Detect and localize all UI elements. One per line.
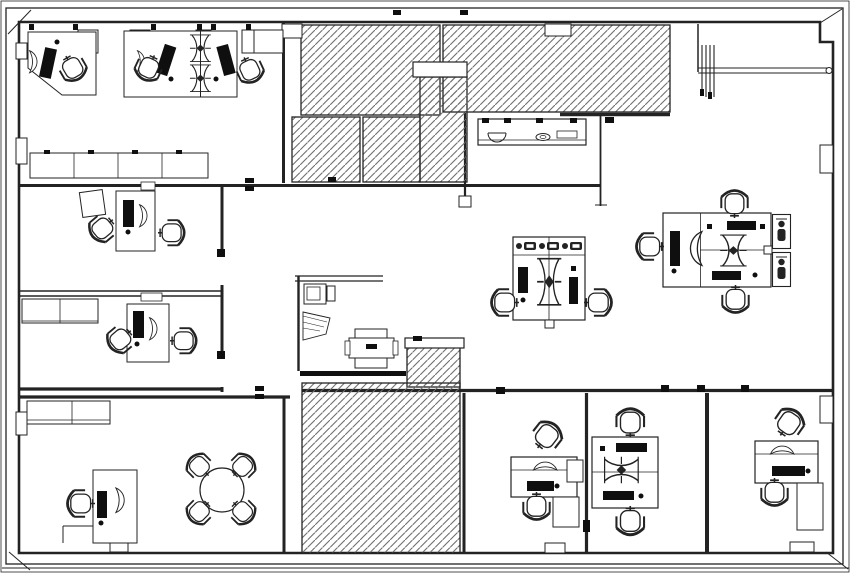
monitor (670, 231, 680, 266)
door-jamb (245, 186, 254, 191)
cabinet-tick (88, 150, 94, 154)
desk-tab (764, 246, 772, 254)
core3-top-band (300, 371, 406, 376)
desk-dot (126, 230, 131, 235)
desk-square (760, 224, 765, 229)
task-chair (637, 233, 665, 259)
corner-bevel-tr (820, 9, 842, 23)
desk-square (600, 446, 605, 451)
overhead-cabinet (242, 30, 254, 53)
door-panel-core1 (413, 62, 467, 77)
window-right-2 (820, 396, 833, 423)
door-jamb (197, 24, 202, 30)
window-right-1 (820, 145, 833, 173)
desk-equipment (539, 242, 559, 250)
hatched-core-1b (363, 117, 420, 182)
return-cabinet (797, 483, 823, 530)
monitor (133, 311, 144, 338)
threshold-officeC (790, 542, 814, 552)
visitor-chair (769, 404, 808, 443)
cabinet-bl (27, 401, 110, 424)
printer-side-tab (345, 341, 350, 355)
door-office2 (141, 293, 162, 301)
cabinet-tick (132, 150, 138, 154)
door-panel-core2 (545, 24, 571, 36)
door-jamb (217, 249, 225, 257)
monitor (603, 491, 634, 500)
door-jamb (245, 178, 254, 183)
visitor-chair (158, 220, 184, 245)
task-chair (233, 52, 267, 86)
printer-slot (366, 344, 377, 349)
desk-dot (135, 342, 140, 347)
monitor (123, 200, 134, 227)
threshold-officeA (545, 543, 565, 553)
door-jamb (255, 386, 264, 391)
desk-dot (521, 298, 526, 303)
task-chair (616, 506, 644, 535)
door-jamb (393, 10, 401, 15)
window-left-1 (16, 43, 27, 59)
door-jamb (697, 385, 705, 392)
cabinet-row-room1 (30, 153, 208, 178)
door-jamb (741, 385, 749, 392)
desk-dot (99, 521, 104, 526)
desk-office1 (116, 191, 155, 251)
door-jamb (460, 10, 468, 15)
cabinet-tick (176, 150, 182, 154)
door-jamb (255, 394, 264, 399)
floor-plan-canvas (0, 0, 851, 574)
desk-square (571, 266, 576, 271)
door-jamb (328, 177, 336, 182)
desk-cluster-a (28, 32, 96, 95)
door-jamb (211, 24, 216, 30)
desk-dot (753, 273, 758, 278)
corner-bevel-br (826, 552, 848, 569)
monitor (616, 443, 647, 452)
window-left-2 (16, 138, 27, 164)
side-cabinet (79, 190, 105, 218)
door-jamb (151, 24, 156, 30)
pedestal-seat (773, 253, 791, 287)
desk-dot (55, 40, 60, 45)
hatched-core-2 (443, 25, 670, 112)
door-jamb (605, 117, 614, 123)
monitor (772, 466, 805, 476)
desk-equipment (516, 242, 536, 250)
monitor (727, 221, 756, 230)
door-panel-core1-left (282, 24, 302, 38)
monitor (97, 491, 107, 518)
hatched-core-3 (302, 383, 460, 553)
printer-tray-bottom (355, 358, 387, 368)
door-jamb (217, 351, 225, 359)
overhead-cabinet (254, 30, 283, 53)
radiator-foot (708, 92, 712, 99)
printer-tray-top (355, 329, 387, 338)
desk-dot (214, 77, 219, 82)
task-chair (584, 289, 612, 315)
desk-dot (672, 269, 677, 274)
counter-tick (570, 118, 577, 123)
stove-burner (536, 134, 550, 141)
door-jamb (583, 520, 590, 532)
door-swing (303, 312, 330, 340)
monitor (569, 277, 578, 304)
task-chair (68, 490, 96, 516)
kitchen-corner-cap (459, 196, 471, 207)
corner-bevel-bl (9, 552, 30, 570)
visitor-chair (170, 328, 196, 353)
door-gap-corridor-1 (219, 257, 226, 285)
hatched-core-1a (292, 117, 360, 182)
monitor (527, 481, 554, 491)
desk-tab (545, 320, 554, 328)
visitor-chair (527, 417, 566, 457)
counter-tick (482, 118, 489, 123)
window-left-3 (16, 412, 27, 435)
counter-rail-end (826, 68, 832, 74)
door-jamb (73, 24, 78, 30)
kitchen-appliance (557, 131, 577, 138)
monitor (518, 267, 528, 293)
printer-side-tab (393, 341, 398, 355)
radiator-foot (700, 89, 704, 96)
task-chair (722, 285, 748, 313)
copier-tray (327, 286, 335, 301)
desk-dot (639, 494, 644, 499)
desk-equipment (562, 242, 582, 250)
copier-inner (307, 287, 320, 300)
door-jamb (246, 24, 251, 30)
cabinet-tick (44, 150, 50, 154)
door-office1 (141, 182, 155, 190)
door-jamb (413, 336, 422, 341)
pedestal-seat (773, 215, 791, 249)
task-chair (616, 409, 644, 438)
counter-tick (504, 118, 511, 123)
floor-plan-page (0, 0, 851, 574)
desk-dot (169, 77, 174, 82)
return-cabinet (553, 497, 579, 527)
desk-square (707, 224, 712, 229)
desk-dot (806, 469, 811, 474)
counter-tick (536, 118, 543, 123)
wall-cabinet (567, 460, 583, 482)
door-jamb (661, 385, 669, 392)
desk-dot (555, 484, 560, 489)
hatched-core-3col (407, 347, 460, 387)
door-jamb (29, 24, 34, 30)
monitor (712, 271, 741, 280)
door-gap-corridor-2 (219, 359, 226, 387)
door-jamb (496, 387, 505, 394)
